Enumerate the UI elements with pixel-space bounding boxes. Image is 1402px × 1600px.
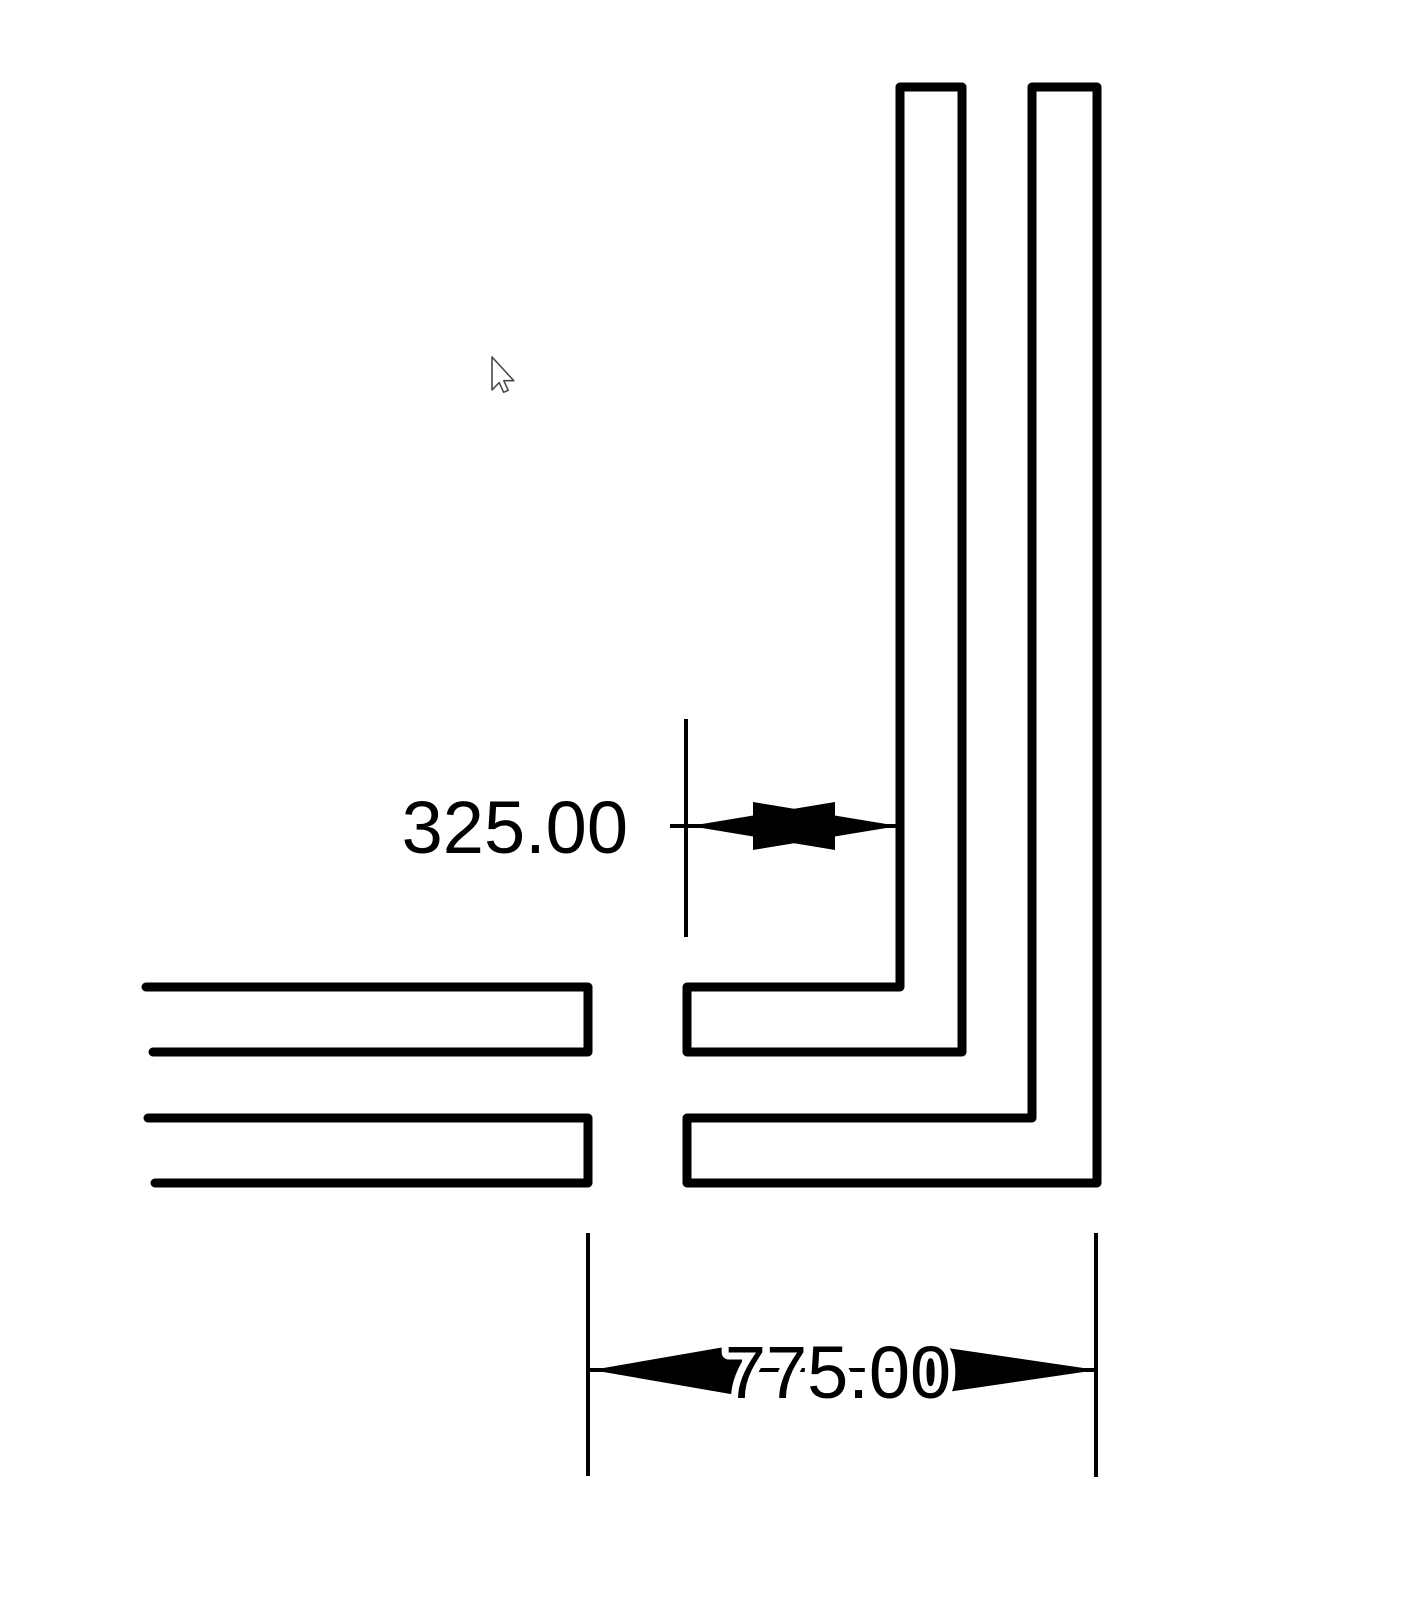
dimension-arrowhead-icon (592, 1344, 742, 1396)
wall-right-inner-L[interactable] (687, 87, 962, 1052)
cad-drawing-area[interactable]: 325.00775.00775.00 (0, 0, 1402, 1600)
wall-left-lower[interactable] (148, 1118, 588, 1183)
mouse-cursor-icon (492, 357, 514, 392)
dimension-325-00[interactable]: 325.00 (402, 719, 898, 937)
wall-left-upper[interactable] (146, 987, 588, 1052)
cad-canvas[interactable]: 325.00775.00775.00 (0, 0, 1402, 1600)
wall-right-outer-L[interactable] (687, 87, 1097, 1183)
dimension-775-00[interactable]: 775.00775.00 (586, 1233, 1098, 1477)
dimension-label[interactable]: 775.00 (725, 1331, 951, 1414)
dimension-label[interactable]: 325.00 (402, 786, 628, 869)
